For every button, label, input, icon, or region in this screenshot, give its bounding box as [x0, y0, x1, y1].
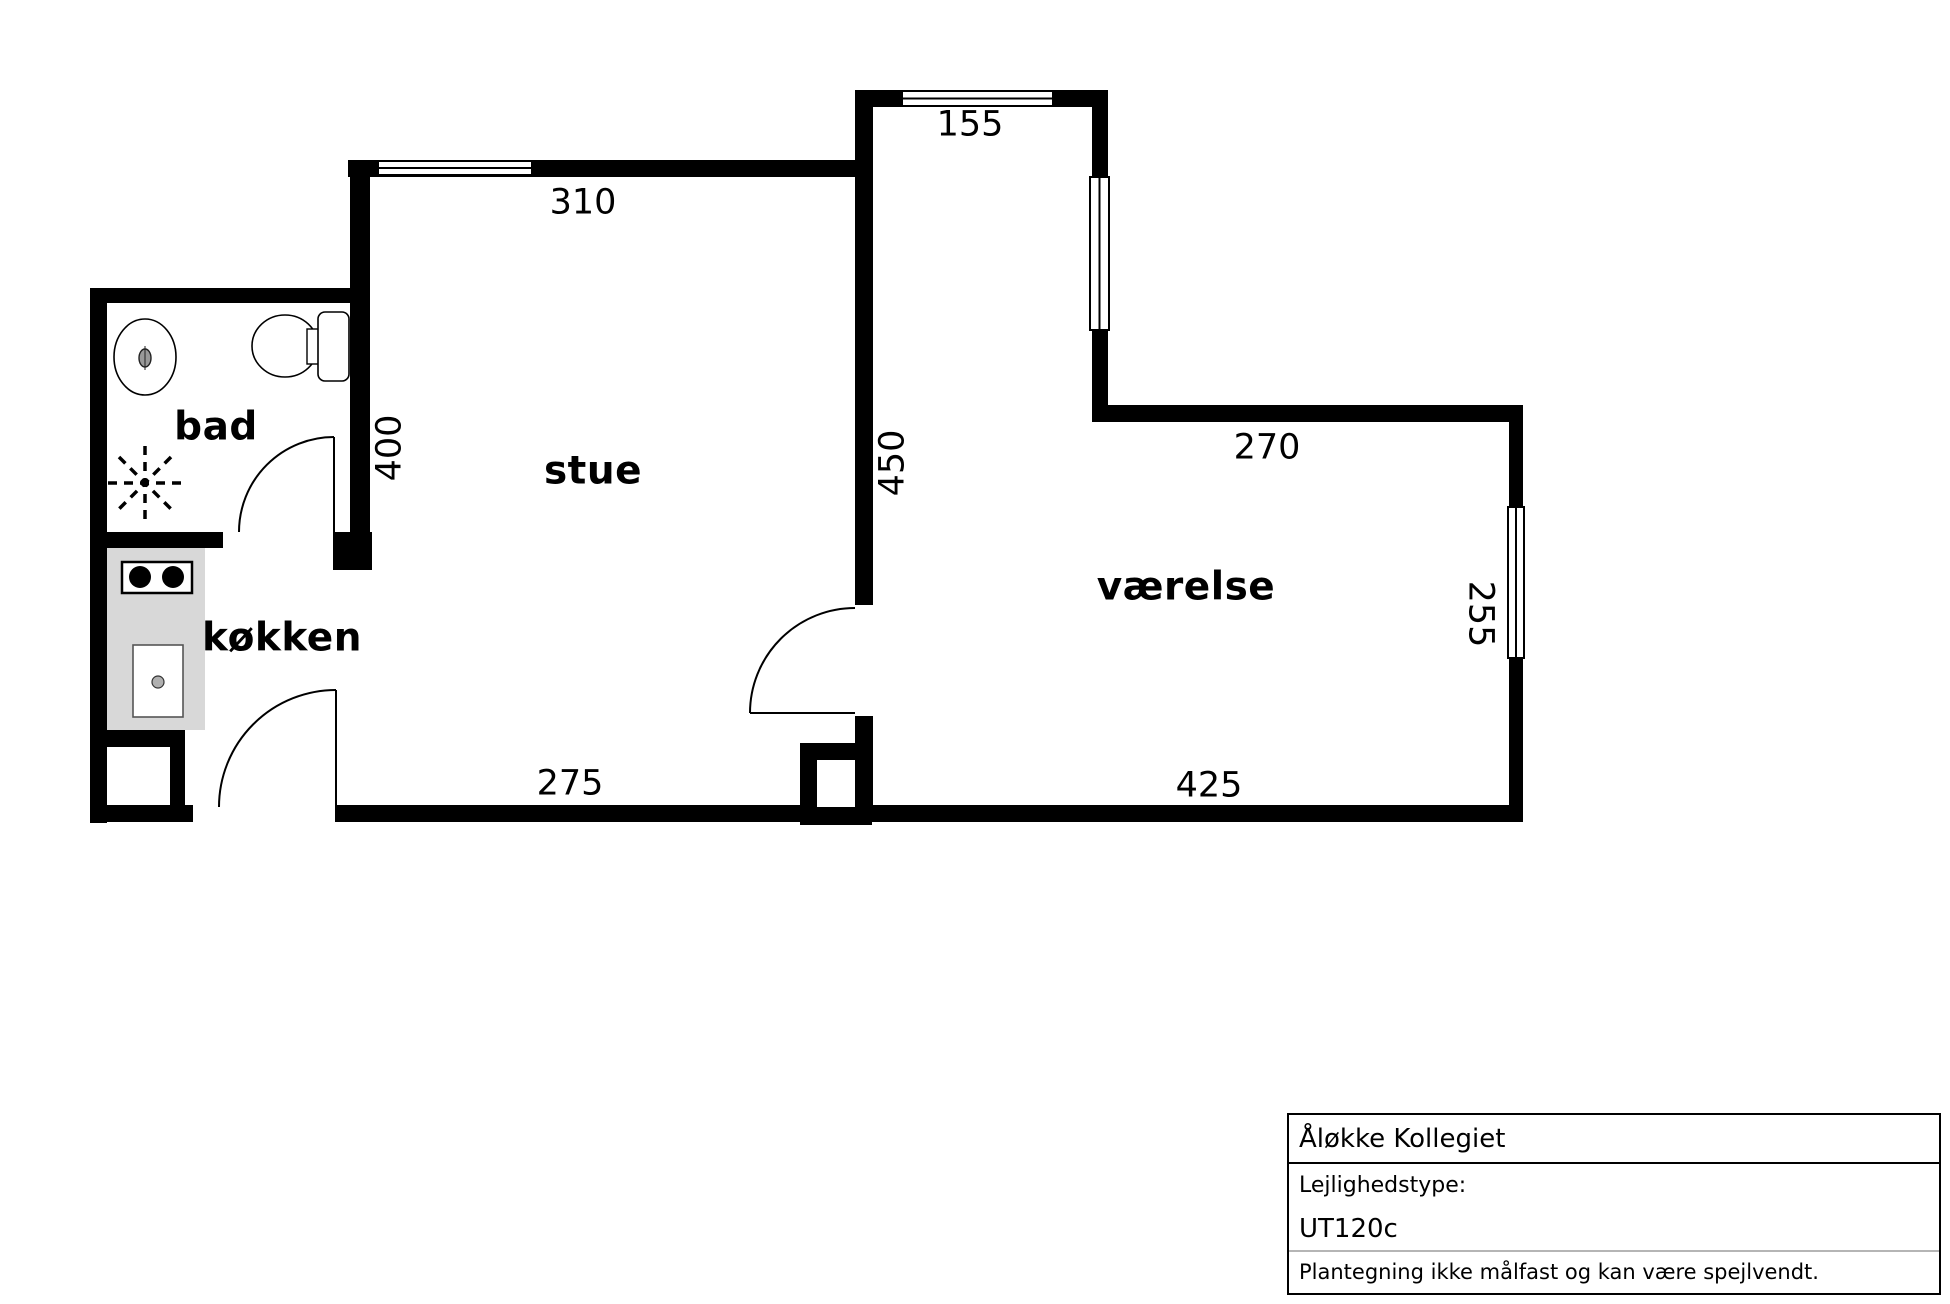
dimension-310: 310 [550, 186, 617, 221]
dimension-450: 450 [876, 430, 911, 497]
wall-bottom-main [335, 805, 1523, 822]
room-label-vaerelse: værelse [1097, 568, 1276, 607]
wall-bath-bottom [90, 532, 223, 548]
info-note: Plantegning ikke målfast og kan være spe… [1289, 1250, 1939, 1293]
room-label-kokken: køkken [202, 619, 362, 658]
wall-middle-upper [855, 90, 873, 605]
walls [90, 90, 1523, 825]
info-type-label: Lejlighedstype: [1299, 1173, 1929, 1198]
floorplan-canvas: bad stue køkken værelse 310 155 400 450 … [0, 0, 1950, 1304]
info-type-value: UT120c [1299, 1214, 1929, 1244]
bathroom-door-arc [239, 437, 334, 532]
bedroom-door-arc [750, 608, 855, 713]
column-inner [817, 760, 855, 807]
wall-bath-stue [350, 160, 370, 570]
info-type-row: Lejlighedstype: UT120c [1289, 1164, 1939, 1250]
room-label-stue: stue [544, 452, 642, 491]
dimension-255: 255 [1463, 581, 1498, 648]
stove-burner-right [162, 566, 184, 588]
dimension-155: 155 [937, 108, 1004, 143]
dimension-425: 425 [1176, 769, 1243, 804]
toilet-tank-icon [318, 312, 349, 381]
wall-mid-horizontal [1092, 405, 1523, 422]
room-label-bad: bad [174, 408, 258, 447]
entrance-door-arc [219, 690, 336, 807]
kitchen-sink-drain [152, 676, 164, 688]
shower-icon [108, 446, 182, 520]
dimension-270: 270 [1234, 431, 1301, 466]
info-title: Åløkke Kollegiet [1289, 1115, 1939, 1164]
wall-bath-top [90, 288, 370, 303]
stove-burner-left [129, 566, 151, 588]
info-box: Åløkke Kollegiet Lejlighedstype: UT120c … [1287, 1113, 1941, 1295]
dimension-400: 400 [373, 415, 408, 482]
wall-bath-door-stub [333, 532, 372, 570]
dimension-275: 275 [537, 767, 604, 802]
wall-closet-right [170, 730, 185, 822]
